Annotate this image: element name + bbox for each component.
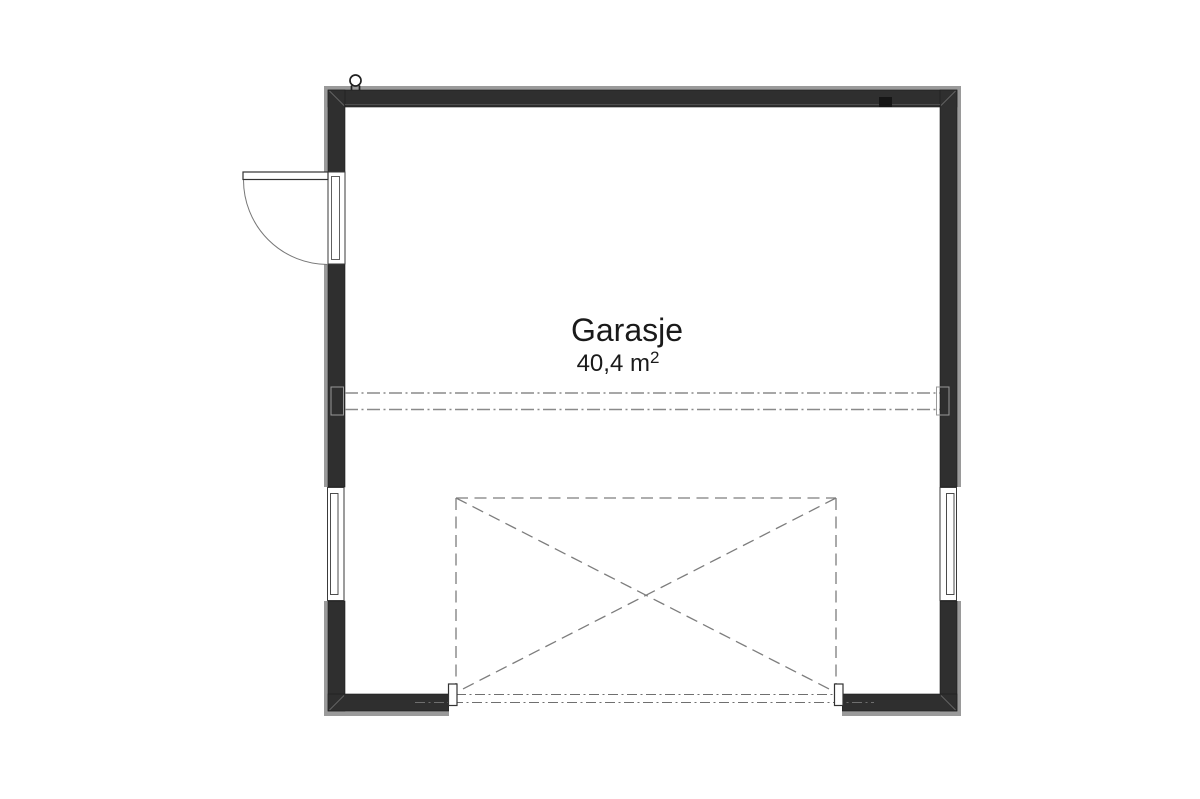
wall-left-upper <box>328 90 345 172</box>
room-area-label: 40,4 m2 <box>577 348 660 377</box>
garage-door-jamb-left <box>449 684 458 706</box>
entry-door <box>243 172 345 265</box>
wall-right-upper <box>940 90 957 487</box>
door-opening-patch <box>323 172 328 264</box>
window-right-patch <box>957 487 962 601</box>
window-left-sash <box>331 494 339 595</box>
interior-floor <box>328 90 957 711</box>
entry-door-leaf <box>243 172 328 180</box>
floor-plan-drawing: Garasje 40,4 m2 <box>0 0 1200 799</box>
entry-door-frame <box>328 172 345 264</box>
window-right-sash <box>947 494 955 595</box>
garage-door-jamb-right <box>835 684 844 706</box>
wall-junction-mark <box>879 97 892 107</box>
wall-bottom-left <box>328 694 449 711</box>
vent-pipe-circle <box>350 75 361 86</box>
room-area-superscript: 2 <box>650 348 659 367</box>
room-label: Garasje <box>571 312 683 348</box>
room-area-value: 40,4 m <box>577 350 650 377</box>
floor-plan: Garasje 40,4 m2 <box>0 0 1200 799</box>
entry-door-swing-arc <box>244 180 329 265</box>
wall-left-middle <box>328 264 345 487</box>
garage-opening-patch <box>449 694 842 716</box>
